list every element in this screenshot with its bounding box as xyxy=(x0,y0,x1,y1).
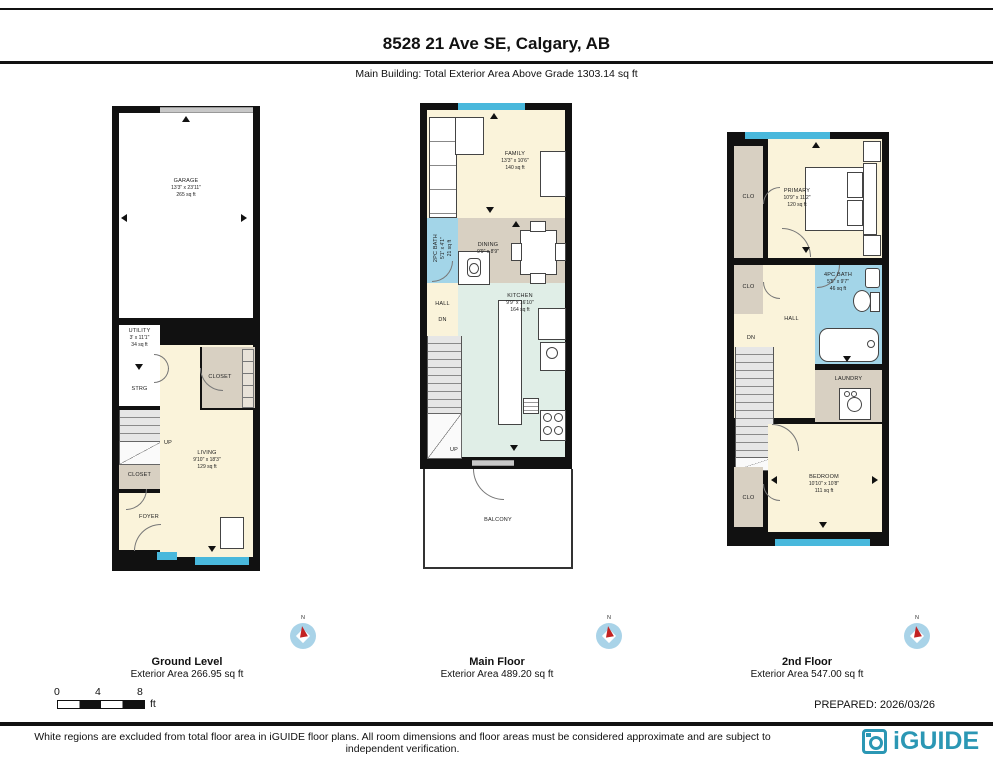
stairs-main xyxy=(427,336,462,413)
room-area: 164 sq ft xyxy=(490,307,550,314)
room-name: 2PC BATH xyxy=(433,227,440,269)
room-area: 265 sq ft xyxy=(119,192,253,199)
arrow-marker-icon xyxy=(512,221,520,227)
room-clo-top xyxy=(734,146,763,258)
room-label-2pc-bath: 2PC BATH 5'1" x 4'1" 21 sq ft xyxy=(433,227,453,269)
tub-faucet xyxy=(867,340,875,348)
floor-area: Exterior Area 489.20 sq ft xyxy=(418,669,576,680)
arrow-marker-icon xyxy=(486,207,494,213)
compass-n-label: N xyxy=(902,615,932,623)
room-label-clo-mid: CLO xyxy=(734,284,763,291)
room-name: BEDROOM xyxy=(789,474,859,481)
compass-needle xyxy=(604,625,614,637)
scale-tick: 8 xyxy=(137,686,143,698)
nightstand xyxy=(863,141,881,162)
window xyxy=(745,132,830,139)
room-name: FAMILY xyxy=(475,151,555,158)
compass-ground: N xyxy=(288,615,318,653)
room-area: 21 sq ft xyxy=(447,227,454,269)
room-label-up: UP xyxy=(160,440,176,447)
burner xyxy=(554,426,563,435)
camera-viewfinder xyxy=(866,733,871,737)
room-area: 46 sq ft xyxy=(815,286,861,293)
caption-ground: Ground Level Exterior Area 266.95 sq ft xyxy=(107,656,267,680)
pillow xyxy=(847,172,863,198)
caption-second: 2nd Floor Exterior Area 547.00 sq ft xyxy=(727,656,887,680)
room-area: 120 sq ft xyxy=(771,202,823,209)
door-arc xyxy=(763,484,780,501)
room-area: 140 sq ft xyxy=(475,165,555,172)
scale-tick: 0 xyxy=(54,686,60,698)
footer-disclaimer: White regions are excluded from total fl… xyxy=(30,731,775,755)
room-area: 111 sq ft xyxy=(789,488,859,495)
arrow-marker-icon xyxy=(121,214,127,222)
room-dims: 9'9" x 8'9" xyxy=(462,249,514,256)
room-label-clo-bottom: CLO xyxy=(734,495,763,502)
stairs-winder xyxy=(119,441,162,465)
room-balcony: BALCONY xyxy=(423,469,573,569)
floor-name: Main Floor xyxy=(418,656,576,668)
arrow-marker-icon xyxy=(182,116,190,122)
room-name: DINING xyxy=(462,242,514,249)
stairs-ground xyxy=(119,410,162,441)
arrow-marker-icon xyxy=(490,113,498,119)
room-name: GARAGE xyxy=(119,178,253,185)
ground-level-plan: GARAGE 13'3" x 23'11" 265 sq ft UTILITY … xyxy=(112,106,260,571)
room-name: HALL xyxy=(768,316,815,323)
room-name: FOYER xyxy=(119,514,179,521)
washer-drum xyxy=(847,397,862,412)
window xyxy=(195,557,249,565)
room-area: 129 sq ft xyxy=(172,464,242,471)
sofa-sectional xyxy=(429,117,457,218)
compass-icon xyxy=(290,623,316,649)
room-label-living: LIVING 9'10" x 18'3" 129 sq ft xyxy=(172,450,242,470)
room-name: HALL xyxy=(427,301,458,308)
room-label-4pc-bath: 4PC BATH 5'5" x 9'7" 46 sq ft xyxy=(815,272,861,292)
arrow-marker-icon xyxy=(771,476,777,484)
arrow-marker-icon xyxy=(819,522,827,528)
toilet-bowl xyxy=(469,263,479,274)
compass-icon xyxy=(904,623,930,649)
pillow xyxy=(847,200,863,226)
room-name: 4PC BATH xyxy=(815,272,861,279)
floor-name: 2nd Floor xyxy=(727,656,887,668)
garage-door xyxy=(160,107,253,113)
room-name: CLOSET xyxy=(119,472,160,479)
dining-chair xyxy=(530,221,546,232)
page-subtitle: Main Building: Total Exterior Area Above… xyxy=(0,68,993,80)
closet-shelves xyxy=(242,349,254,408)
main-floor-plan: FAMILY 13'3" x 10'6" 140 sq ft DINING 9'… xyxy=(420,103,572,469)
window xyxy=(458,103,525,110)
room-label-foyer: FOYER xyxy=(119,514,179,521)
room-label-garage: GARAGE 13'3" x 23'11" 265 sq ft xyxy=(119,178,253,198)
room-name: CLO xyxy=(734,495,763,502)
prepared-date: PREPARED: 2026/03/26 xyxy=(690,699,935,711)
iguide-logo: iGUIDE xyxy=(862,727,979,756)
room-name: CLO xyxy=(734,284,763,291)
dining-table xyxy=(520,230,557,275)
bath-sink xyxy=(865,268,880,288)
room-name: UP xyxy=(160,440,176,447)
door-arc xyxy=(473,469,504,500)
room-name: UP xyxy=(446,447,462,454)
compass-second: N xyxy=(902,615,932,653)
burner xyxy=(543,413,552,422)
room-label-kitchen: KITCHEN 9'9" x 16'10" 164 sq ft xyxy=(490,293,550,313)
room-label-clo-top: CLO xyxy=(734,194,763,201)
room-name: UTILITY xyxy=(119,328,160,335)
scale-tick: 4 xyxy=(95,686,101,698)
burner xyxy=(543,426,552,435)
window xyxy=(775,539,870,546)
room-label-hall: HALL xyxy=(427,301,458,308)
room-label-closet-upper: CLOSET xyxy=(198,374,242,381)
floor-name: Ground Level xyxy=(107,656,267,668)
page-title: 8528 21 Ave SE, Calgary, AB xyxy=(0,34,993,54)
top-border-rule xyxy=(0,8,993,10)
camera-icon xyxy=(862,729,887,754)
window xyxy=(157,552,177,560)
arrow-marker-icon xyxy=(510,445,518,451)
dishwasher xyxy=(523,398,539,414)
arrow-marker-icon xyxy=(241,214,247,222)
room-label-family: FAMILY 13'3" x 10'6" 140 sq ft xyxy=(475,151,555,171)
arrow-marker-icon xyxy=(812,142,820,148)
room-label-dining: DINING 9'9" x 8'9" xyxy=(462,242,514,256)
balcony-door-sill xyxy=(472,460,514,466)
dining-chair xyxy=(530,273,546,284)
room-name: CLO xyxy=(734,194,763,201)
toilet-bowl xyxy=(853,290,871,312)
toilet-tank xyxy=(870,292,880,312)
header-rule xyxy=(0,61,993,64)
headboard xyxy=(863,163,877,235)
room-label-primary: PRIMARY 10'9" x 11'2" 120 sq ft xyxy=(771,188,823,208)
caption-main: Main Floor Exterior Area 489.20 sq ft xyxy=(418,656,576,680)
room-garage xyxy=(119,113,253,318)
room-name: KITCHEN xyxy=(490,293,550,300)
room-area: 34 sq ft xyxy=(119,342,160,349)
room-label-balcony: BALCONY xyxy=(425,517,571,524)
room-name: STRG xyxy=(119,386,160,393)
arrow-marker-icon xyxy=(802,247,810,253)
logo-text: iGUIDE xyxy=(893,727,979,756)
floor-area: Exterior Area 547.00 sq ft xyxy=(727,669,887,680)
second-floor-plan: CLO PRIMARY 10'9" x 11'2" 120 sq ft CLO … xyxy=(727,132,889,546)
dining-chair xyxy=(555,243,566,261)
scale-bar: 0 4 8 ft xyxy=(57,686,177,710)
room-name: LAUNDRY xyxy=(815,376,882,383)
nightstand xyxy=(863,235,881,256)
room-label-utility: UTILITY 3' x 11'1" 34 sq ft xyxy=(119,328,160,348)
room-name: BALCONY xyxy=(425,517,571,524)
burner xyxy=(554,413,563,422)
room-name: DN xyxy=(739,335,763,342)
room-name: LIVING xyxy=(172,450,242,457)
footer-rule xyxy=(0,722,993,726)
sink-basin xyxy=(546,347,558,359)
room-label-strg: STRG xyxy=(119,386,160,393)
compass-n-label: N xyxy=(594,615,624,623)
living-table xyxy=(220,517,244,549)
room-label-hall-2: HALL xyxy=(768,316,815,323)
compass-n-label: N xyxy=(288,615,318,623)
room-label-laundry: LAUNDRY xyxy=(815,376,882,383)
room-label-dn-2: DN xyxy=(739,335,763,342)
room-label-bedroom: BEDROOM 10'10" x 10'8" 111 sq ft xyxy=(789,474,859,494)
room-label-dn: DN xyxy=(427,317,458,324)
room-label-closet-lower: CLOSET xyxy=(119,472,160,479)
arrow-marker-icon xyxy=(135,364,143,370)
room-label-up: UP xyxy=(446,447,462,454)
compass-needle xyxy=(298,625,308,637)
floor-area: Exterior Area 266.95 sq ft xyxy=(107,669,267,680)
sofa-chaise xyxy=(455,117,484,155)
camera-lens xyxy=(869,736,883,750)
washer-knob xyxy=(851,391,857,397)
kitchen-island xyxy=(498,300,522,425)
room-name: CLOSET xyxy=(198,374,242,381)
arrow-marker-icon xyxy=(208,546,216,552)
room-name: DN xyxy=(427,317,458,324)
scale-unit: ft xyxy=(150,698,156,710)
compass-icon xyxy=(596,623,622,649)
compass-needle xyxy=(912,625,922,637)
washer-knob xyxy=(844,391,850,397)
arrow-marker-icon xyxy=(843,356,851,362)
arrow-marker-icon xyxy=(872,476,878,484)
scale-bar-segments xyxy=(57,700,145,709)
compass-main: N xyxy=(594,615,624,653)
room-hall xyxy=(427,283,458,336)
room-name: PRIMARY xyxy=(771,188,823,195)
floorplan-page: 8528 21 Ave SE, Calgary, AB Main Buildin… xyxy=(0,0,993,768)
